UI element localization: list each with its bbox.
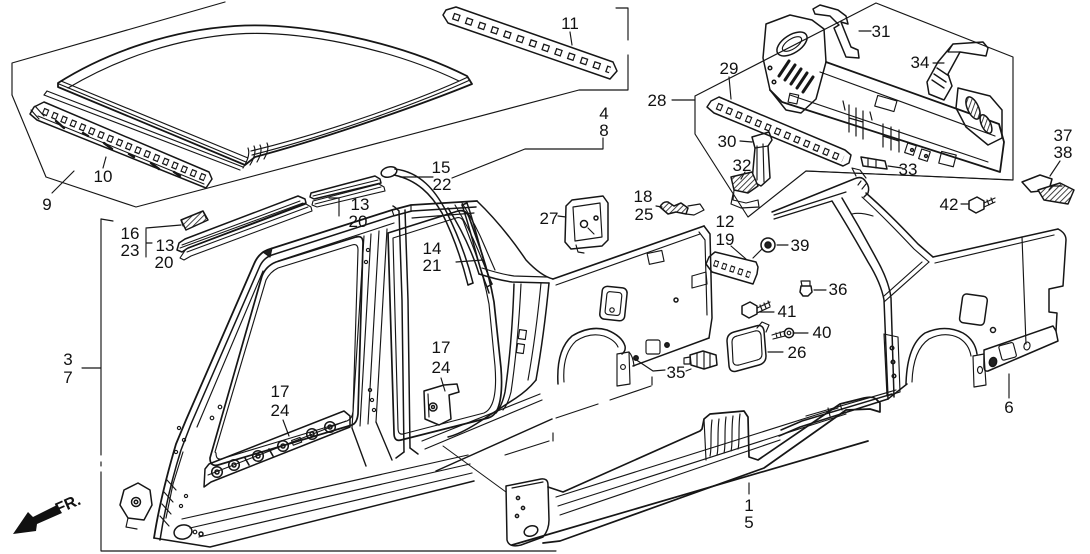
svg-text:21: 21	[423, 256, 442, 275]
svg-text:36: 36	[829, 280, 848, 299]
svg-text:31: 31	[872, 22, 891, 41]
svg-text:22: 22	[433, 175, 452, 194]
svg-text:33: 33	[899, 160, 918, 179]
svg-text:12: 12	[716, 212, 735, 231]
svg-text:3: 3	[63, 350, 72, 369]
svg-text:19: 19	[716, 230, 735, 249]
svg-text:30: 30	[718, 132, 737, 151]
svg-text:9: 9	[42, 195, 51, 214]
svg-text:25: 25	[635, 205, 654, 224]
svg-text:23: 23	[121, 241, 140, 260]
svg-text:18: 18	[634, 187, 653, 206]
svg-text:24: 24	[271, 401, 290, 420]
svg-text:42: 42	[940, 195, 959, 214]
svg-text:40: 40	[813, 323, 832, 342]
svg-text:11: 11	[561, 14, 579, 33]
svg-text:FR.: FR.	[53, 492, 83, 518]
svg-text:20: 20	[155, 253, 174, 272]
svg-text:26: 26	[788, 343, 807, 362]
svg-text:6: 6	[1004, 398, 1013, 417]
svg-text:17: 17	[271, 382, 290, 401]
svg-text:41: 41	[778, 302, 797, 321]
svg-text:27: 27	[540, 209, 559, 228]
svg-text:20: 20	[349, 212, 368, 231]
svg-text:38: 38	[1054, 143, 1073, 162]
svg-text:32: 32	[733, 156, 752, 175]
svg-text:10: 10	[94, 167, 113, 186]
svg-text:28: 28	[648, 91, 667, 110]
svg-text:8: 8	[599, 121, 608, 140]
svg-text:35: 35	[667, 363, 686, 382]
svg-text:17: 17	[432, 338, 451, 357]
svg-text:39: 39	[791, 236, 810, 255]
svg-text:5: 5	[744, 513, 753, 532]
svg-text:29: 29	[720, 59, 739, 78]
svg-text:24: 24	[432, 358, 451, 377]
svg-text:34: 34	[911, 53, 930, 72]
svg-text:7: 7	[63, 368, 72, 387]
